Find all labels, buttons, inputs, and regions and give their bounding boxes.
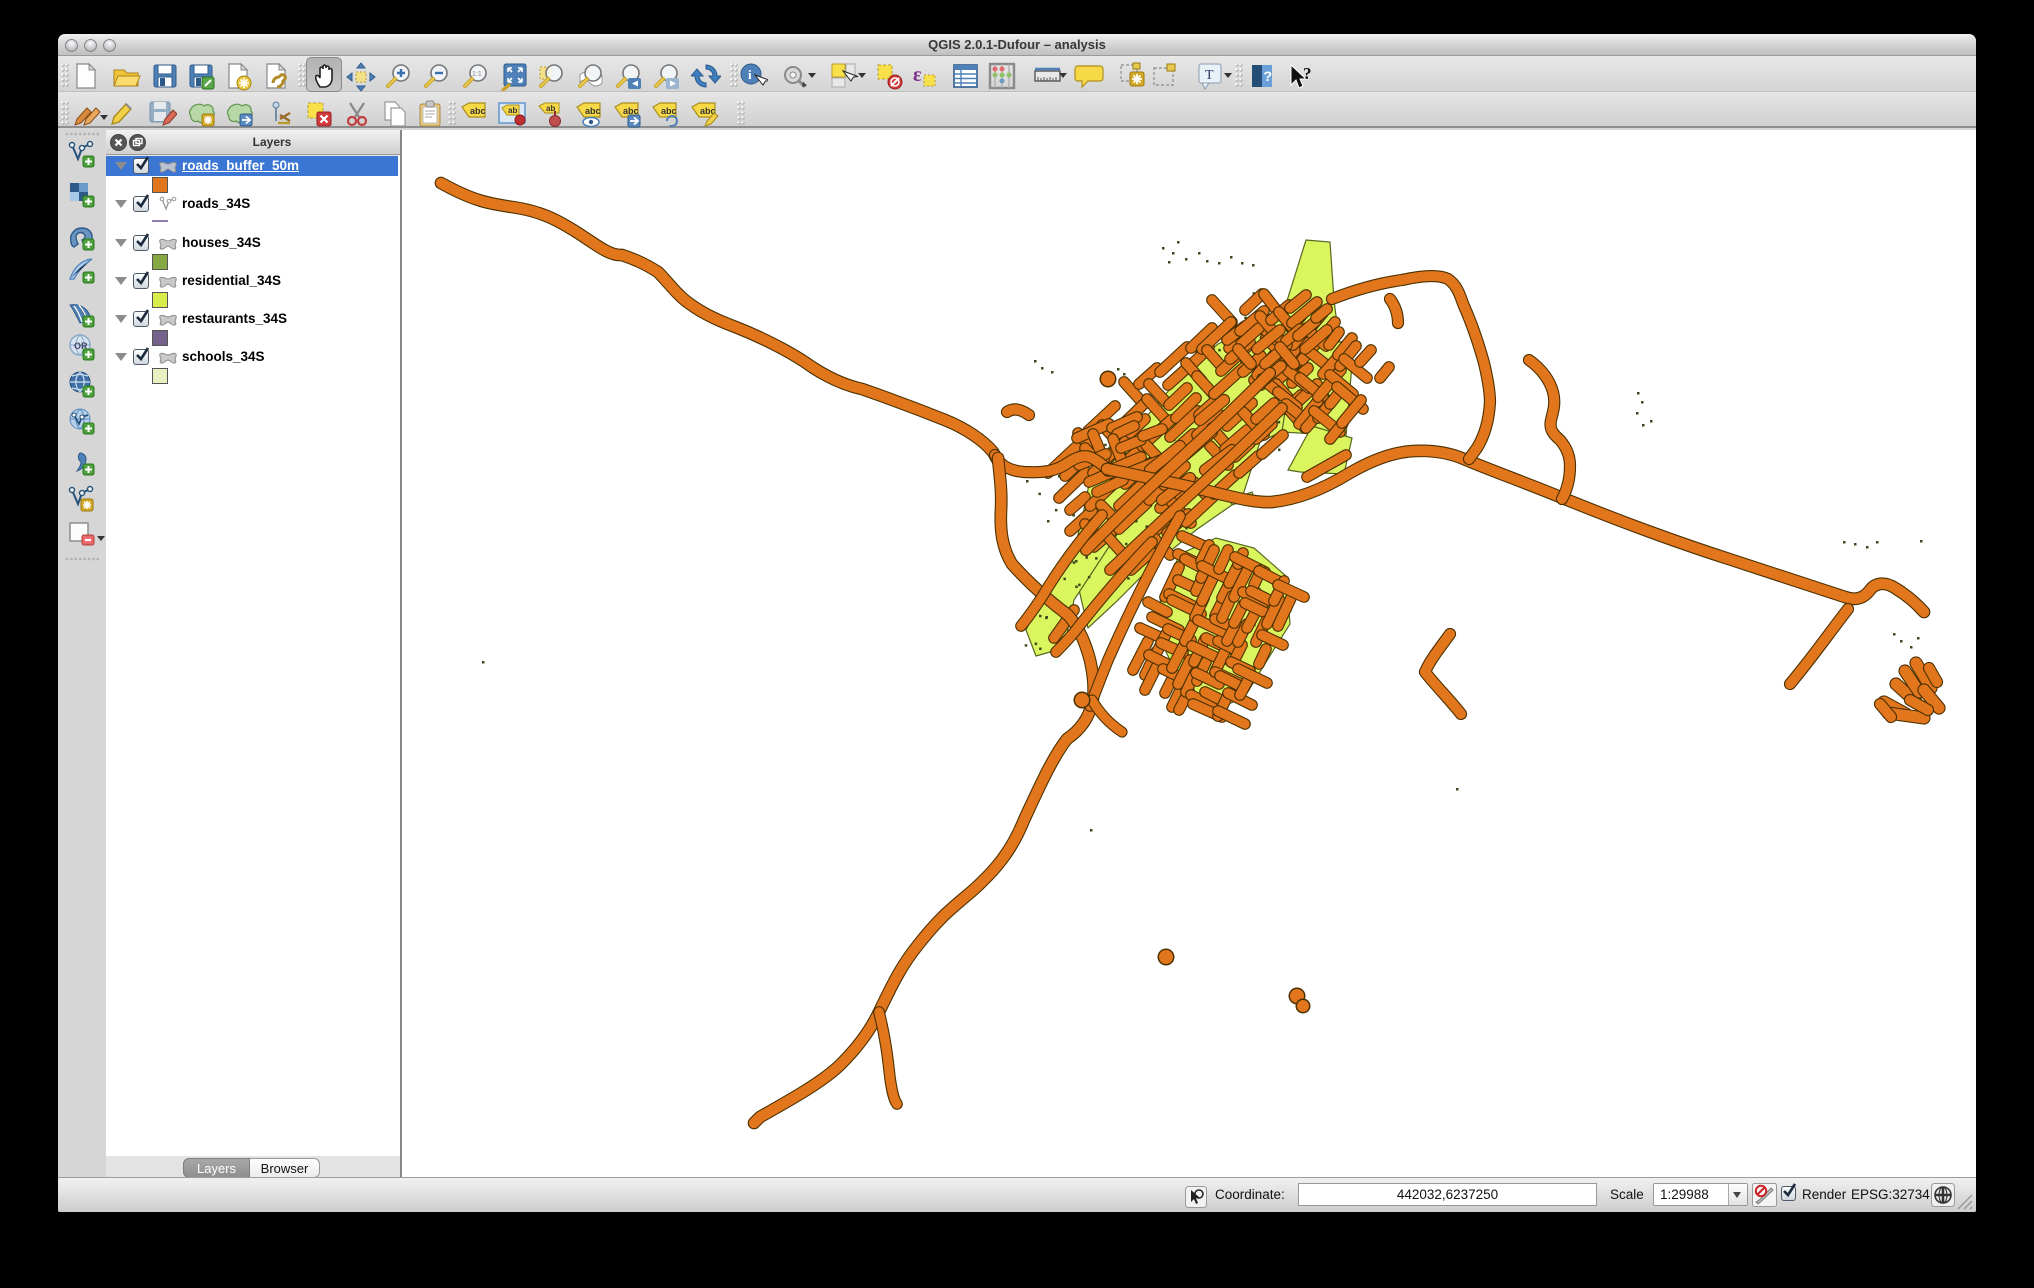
svg-text:?: ? xyxy=(1303,64,1312,83)
svg-text:1:1: 1:1 xyxy=(472,71,482,78)
svg-text:i: i xyxy=(748,67,752,82)
svg-text:abc: abc xyxy=(585,106,601,116)
svg-text:ab: ab xyxy=(508,106,517,115)
svg-text:abc: abc xyxy=(470,106,486,116)
svg-text:T: T xyxy=(1205,68,1214,83)
svg-text:?: ? xyxy=(1264,68,1273,84)
svg-text:abc: abc xyxy=(661,106,677,116)
svg-text:ε: ε xyxy=(913,64,922,86)
